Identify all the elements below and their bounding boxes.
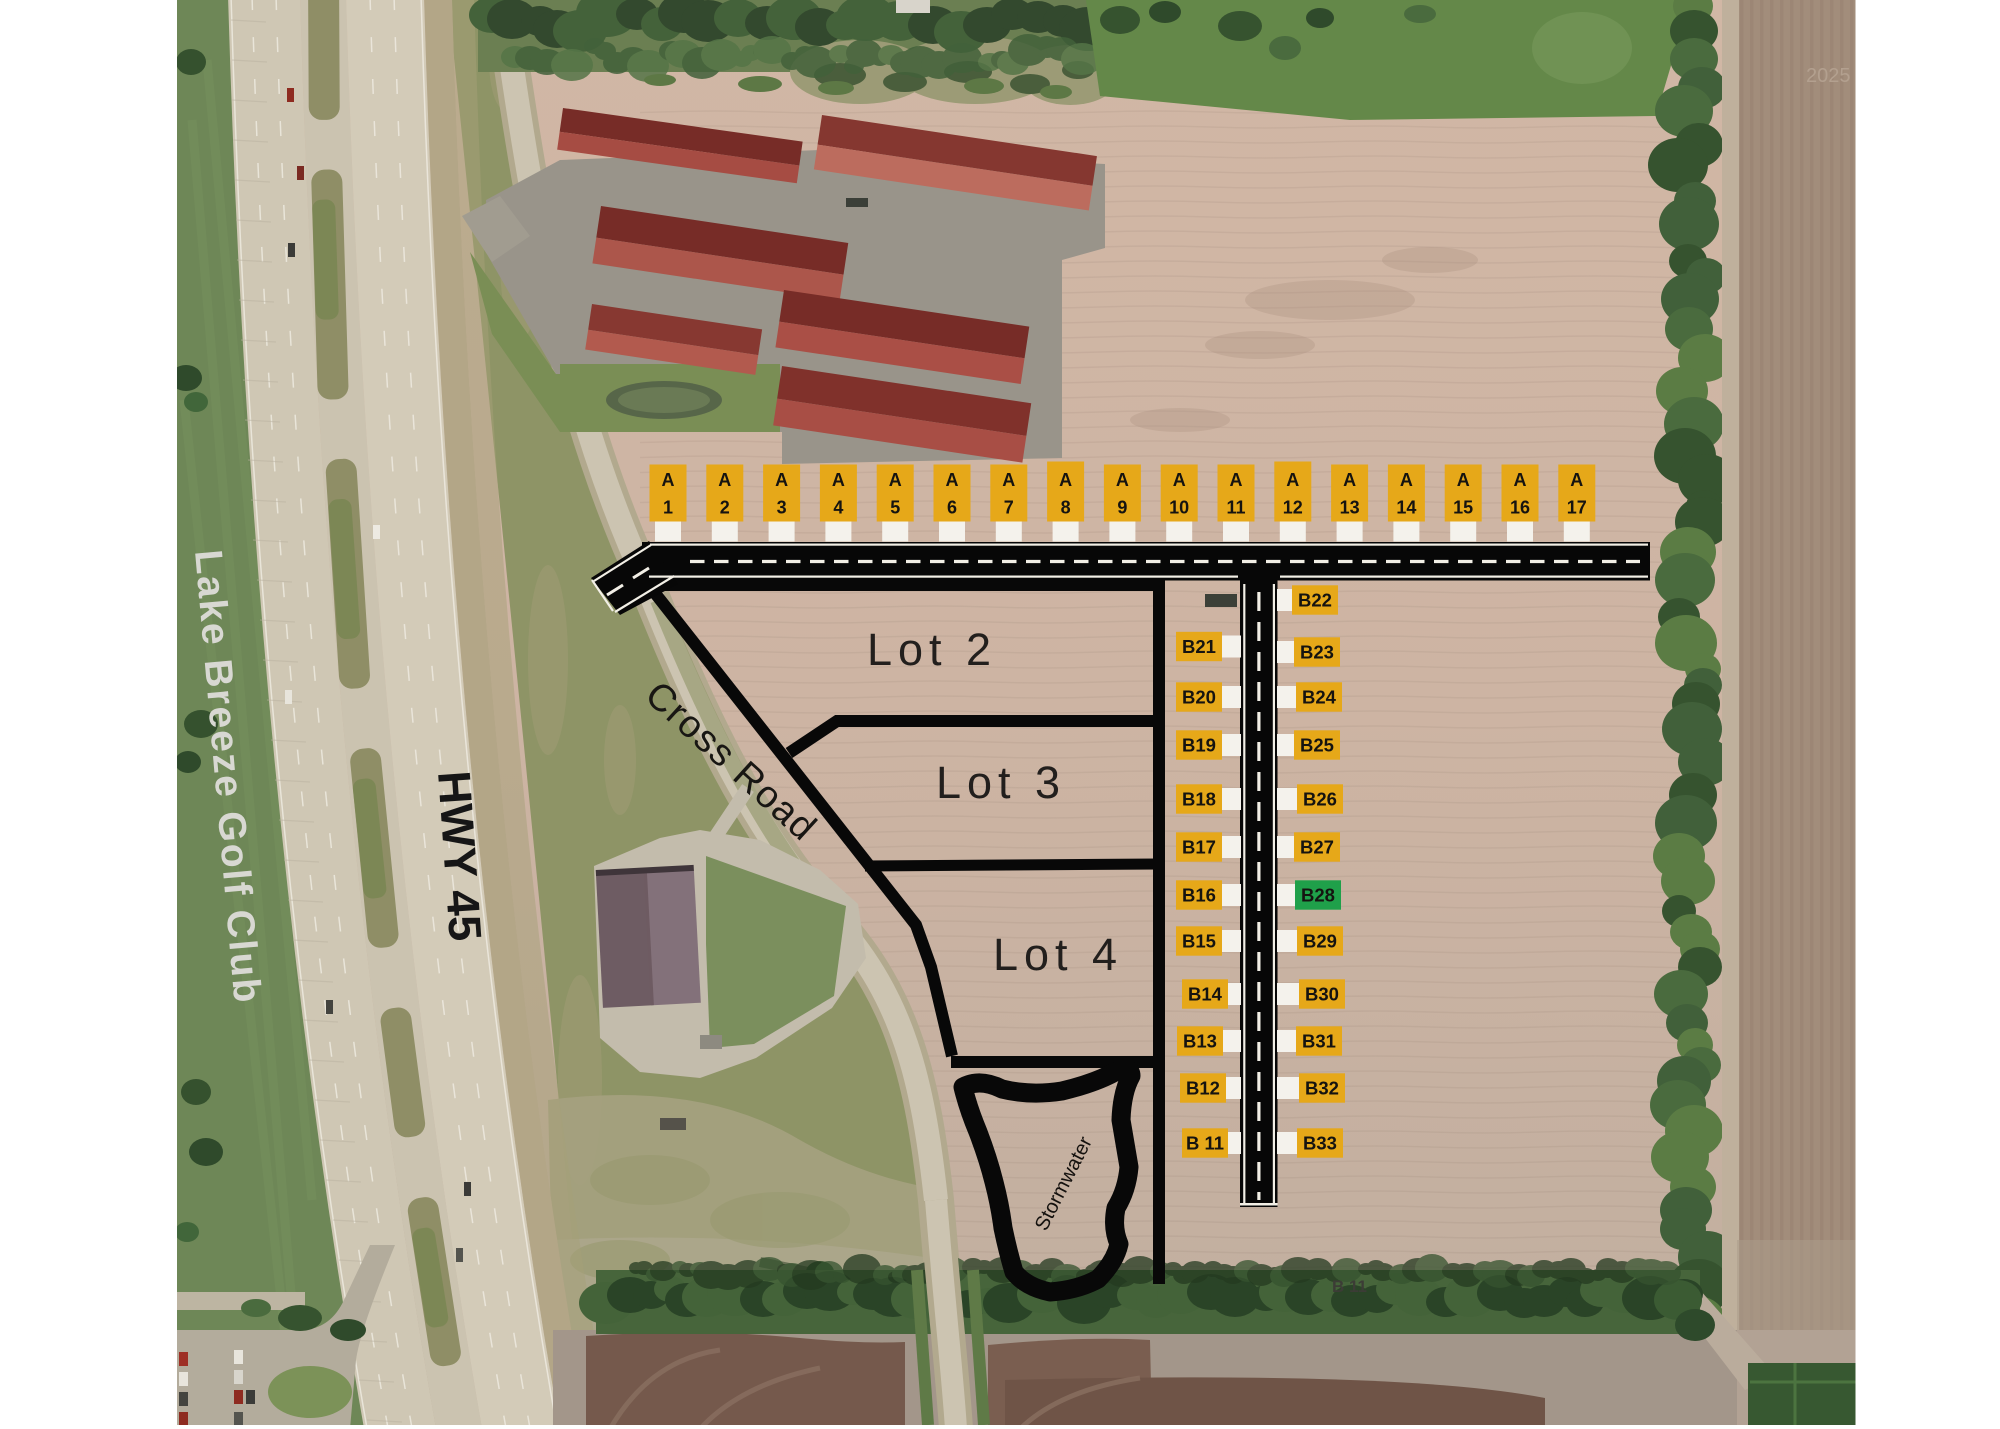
svg-text:A: A [1002, 470, 1015, 490]
svg-text:B22: B22 [1298, 590, 1332, 611]
svg-text:B33: B33 [1303, 1133, 1337, 1154]
svg-text:3: 3 [777, 498, 787, 518]
svg-text:17: 17 [1567, 498, 1587, 518]
svg-text:B24: B24 [1302, 687, 1337, 708]
svg-text:B31: B31 [1302, 1031, 1336, 1052]
svg-text:10: 10 [1169, 498, 1189, 518]
svg-text:9: 9 [1117, 498, 1127, 518]
svg-text:A: A [1230, 470, 1243, 490]
svg-text:A: A [718, 470, 731, 490]
svg-text:B12: B12 [1186, 1078, 1220, 1099]
svg-text:A: A [1457, 470, 1470, 490]
svg-text:B28: B28 [1301, 885, 1335, 906]
svg-text:2025: 2025 [1806, 65, 1851, 87]
svg-text:12: 12 [1283, 498, 1303, 518]
svg-text:8: 8 [1061, 498, 1071, 518]
svg-text:14: 14 [1396, 498, 1416, 518]
svg-text:4: 4 [833, 498, 843, 518]
svg-text:Lot 3: Lot 3 [936, 757, 1066, 808]
svg-text:A: A [1514, 470, 1527, 490]
svg-text:A: A [1116, 470, 1129, 490]
svg-text:B26: B26 [1303, 789, 1337, 810]
svg-text:15: 15 [1453, 498, 1473, 518]
svg-text:A: A [775, 470, 788, 490]
svg-text:1: 1 [663, 498, 673, 518]
svg-text:B13: B13 [1183, 1031, 1217, 1052]
svg-text:16: 16 [1510, 498, 1530, 518]
svg-text:B 11: B 11 [1186, 1133, 1224, 1154]
svg-text:A: A [1059, 470, 1072, 490]
svg-text:11: 11 [1226, 498, 1245, 518]
svg-text:B25: B25 [1300, 735, 1334, 756]
svg-text:B21: B21 [1182, 636, 1216, 657]
svg-text:A: A [832, 470, 845, 490]
svg-text:6: 6 [947, 498, 957, 518]
svg-text:B15: B15 [1182, 931, 1216, 952]
svg-text:B14: B14 [1188, 984, 1223, 1005]
svg-text:A: A [1286, 470, 1299, 490]
svg-text:A: A [889, 470, 902, 490]
svg-text:7: 7 [1004, 498, 1014, 518]
svg-text:5: 5 [890, 498, 900, 518]
svg-text:B32: B32 [1305, 1078, 1339, 1099]
svg-text:B16: B16 [1182, 885, 1216, 906]
svg-text:A: A [1570, 470, 1583, 490]
svg-text:B20: B20 [1182, 687, 1216, 708]
svg-text:B29: B29 [1303, 931, 1337, 952]
svg-text:A: A [946, 470, 959, 490]
svg-text:A: A [1400, 470, 1413, 490]
svg-text:A: A [662, 470, 675, 490]
svg-text:B23: B23 [1300, 642, 1334, 663]
svg-text:A: A [1343, 470, 1356, 490]
svg-text:B30: B30 [1305, 984, 1339, 1005]
svg-text:Lot 4: Lot 4 [993, 929, 1123, 980]
svg-text:B 11: B 11 [1332, 1277, 1367, 1296]
svg-text:B27: B27 [1300, 837, 1334, 858]
svg-text:A: A [1173, 470, 1186, 490]
svg-text:B19: B19 [1182, 735, 1216, 756]
svg-text:Lot 2: Lot 2 [867, 624, 997, 675]
svg-text:B17: B17 [1182, 837, 1216, 858]
svg-text:13: 13 [1340, 498, 1360, 518]
svg-text:2: 2 [720, 498, 730, 518]
svg-text:B18: B18 [1182, 789, 1216, 810]
